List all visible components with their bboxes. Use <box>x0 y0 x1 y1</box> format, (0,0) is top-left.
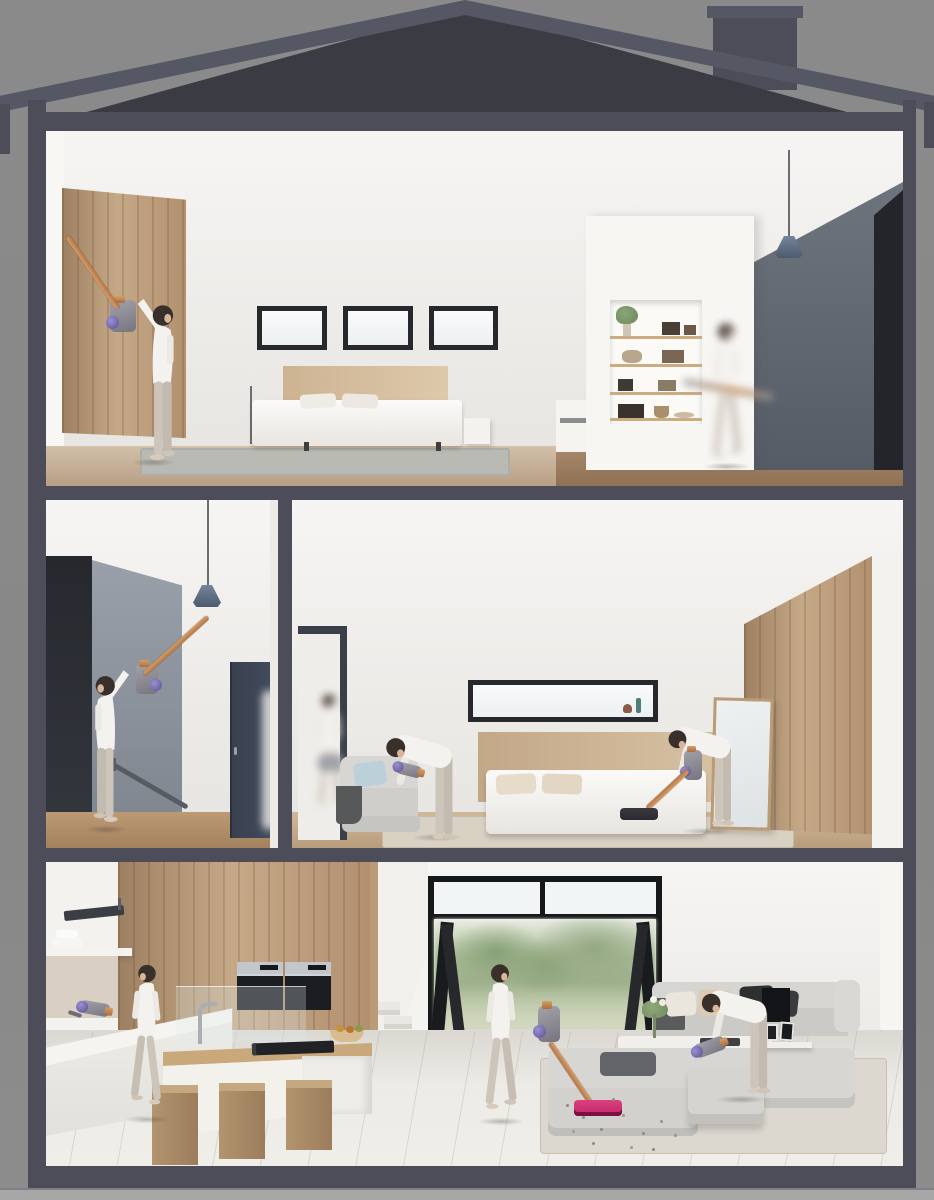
chimney-cap <box>707 6 803 18</box>
door-handle <box>234 747 237 755</box>
bed-pillow-2 <box>342 393 378 408</box>
transom-mullion <box>540 882 545 914</box>
vacuum-floorhead <box>620 808 658 820</box>
pink-floorhead <box>574 1100 622 1116</box>
bed-leg-2 <box>436 442 441 451</box>
decor-teapot <box>622 350 642 363</box>
woman-vacuuming-ottoman <box>698 962 784 1100</box>
accent-wall-black <box>874 190 903 470</box>
dark-throw <box>336 786 362 824</box>
ground-line <box>0 1188 934 1200</box>
window-1 <box>257 306 327 350</box>
pendant-lamp <box>193 585 221 607</box>
cyclone <box>150 679 162 691</box>
cut-wall-face <box>46 131 64 486</box>
window-ornament-figure <box>623 704 632 713</box>
gutter-left <box>0 104 10 154</box>
low-cabinet <box>556 400 590 452</box>
pendant-cord <box>207 500 209 585</box>
debris-specks <box>566 1104 569 1107</box>
cushion-white <box>665 991 697 1017</box>
slab-mid-2 <box>28 848 916 862</box>
end-wall-white <box>872 556 903 848</box>
copper-filter <box>542 1001 552 1009</box>
plant <box>616 306 638 324</box>
nightstand <box>464 418 490 444</box>
decor-books <box>662 350 684 363</box>
slab-top <box>28 112 916 131</box>
woman-vacuuming-living-floor <box>470 950 530 1122</box>
decor-jars <box>658 380 676 391</box>
sofa-armrest <box>834 980 860 1032</box>
decor-plate <box>674 412 694 418</box>
bed-leg-1 <box>304 442 309 451</box>
oven-display-1 <box>260 965 278 970</box>
window-2 <box>343 306 413 350</box>
floor-mid-bedroom <box>292 500 903 848</box>
sofa-chaise <box>548 1088 698 1136</box>
stool-3 <box>286 1080 332 1150</box>
mid-room-divider <box>278 500 292 848</box>
letterbox-window <box>468 680 658 722</box>
oven-display-2 <box>308 965 326 970</box>
wall-left <box>28 100 46 1188</box>
decor-box-2 <box>684 325 696 335</box>
window-ornament-bottle <box>636 698 641 713</box>
woman-vacuuming-floor <box>664 700 748 832</box>
stick-vacuum-body <box>684 750 702 780</box>
stool-2 <box>219 1083 265 1159</box>
shelf-niche <box>610 300 702 424</box>
bed-pillow-2 <box>542 773 583 794</box>
copper-filter <box>687 746 696 752</box>
cyclone <box>106 316 119 329</box>
slab-mid-1 <box>28 486 916 500</box>
niche-shelf-1 <box>610 336 702 339</box>
lumbar-cushion-dark <box>600 1052 656 1076</box>
stair-step-1 <box>378 1002 400 1015</box>
dish-stack-2 <box>52 938 82 948</box>
niche-shelf-3 <box>610 392 702 395</box>
niche-shelf-4 <box>610 418 702 421</box>
bedroom-rug <box>140 448 510 476</box>
copper-filter <box>139 660 149 667</box>
fruit <box>336 1025 344 1032</box>
slab-base <box>28 1166 916 1190</box>
bed-pillow-1 <box>300 393 337 409</box>
hood-support <box>118 898 121 910</box>
woman-vacuuming-lamp <box>76 662 140 832</box>
sink-tap <box>198 1002 217 1044</box>
decor-basket <box>654 406 669 418</box>
decor-box-1 <box>662 322 680 335</box>
flower-stem <box>653 1014 656 1038</box>
wall-right <box>903 100 916 1188</box>
floor-ground <box>46 862 903 1166</box>
house-cutaway-illustration <box>0 0 934 1200</box>
bed-pillow-1 <box>496 773 537 795</box>
divider-cut-face <box>270 500 278 848</box>
floor-top-bedroom <box>46 131 903 486</box>
decor-box-3 <box>618 379 633 391</box>
woman-vacuuming-wardrobe <box>126 298 194 463</box>
window-3 <box>429 306 498 350</box>
flower-blossoms <box>650 996 657 1003</box>
floor-mid-stair-hall <box>46 500 278 848</box>
woman-vacuuming-armchair <box>382 706 470 846</box>
stair-step-2 <box>384 1016 412 1029</box>
gutter-right <box>924 102 934 148</box>
decor-typewriter <box>618 404 644 418</box>
stick-vacuum-body <box>538 1006 560 1042</box>
glass-splash-screen <box>176 986 306 1043</box>
copper-filter <box>104 1007 113 1016</box>
niche-shelf-2 <box>610 364 702 367</box>
pendant-cord <box>788 150 790 238</box>
low-cabinet-slot <box>560 418 586 423</box>
dish-stack-1 <box>56 930 78 938</box>
plant-pot <box>623 324 631 336</box>
woman-vacuuming-worktop <box>118 950 176 1118</box>
cyclone <box>533 1025 546 1038</box>
